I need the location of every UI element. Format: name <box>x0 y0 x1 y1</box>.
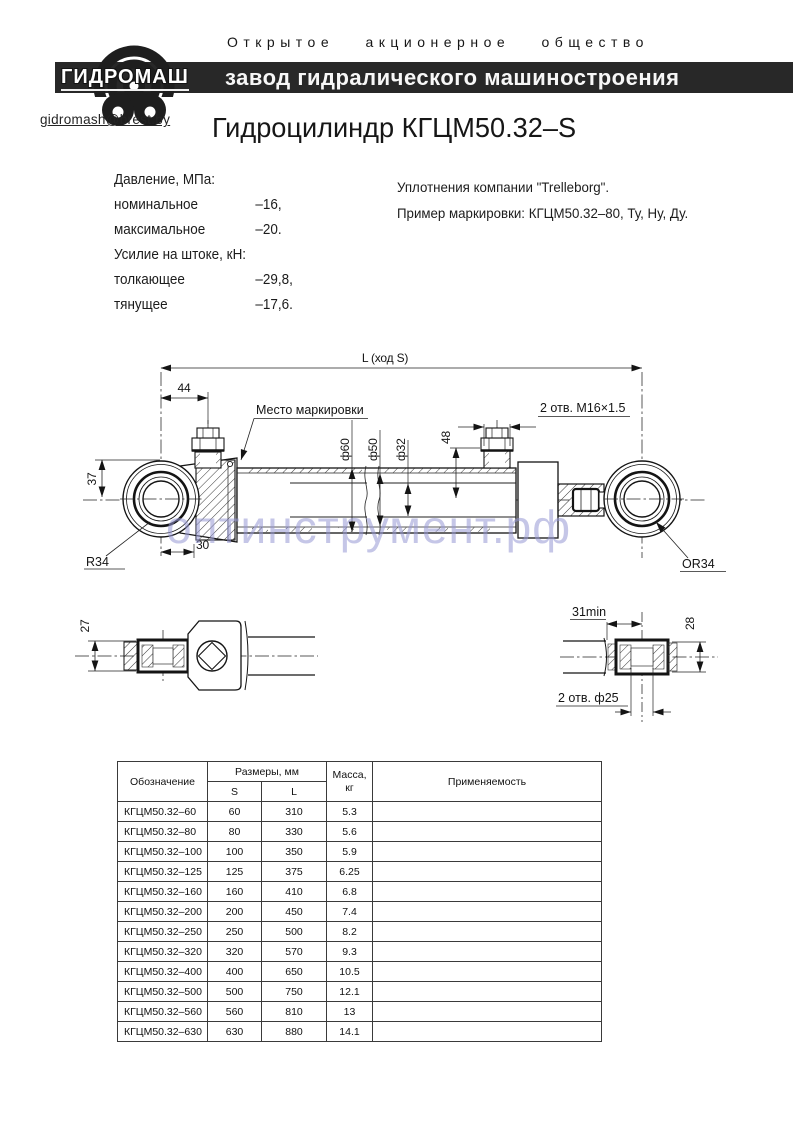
cell-mass: 6.8 <box>327 882 373 902</box>
spec-value: –20. <box>255 222 281 238</box>
cell-mass: 5.3 <box>327 802 373 822</box>
col-header-l: L <box>262 782 327 802</box>
table-row: КГЦМ50.32–50050075012.1 <box>118 982 602 1002</box>
cell-l: 410 <box>262 882 327 902</box>
col-header-mass: Масса, кг <box>327 762 373 802</box>
cell-l: 500 <box>262 922 327 942</box>
cell-application <box>373 842 602 862</box>
cell-designation: КГЦМ50.32–630 <box>118 1022 208 1042</box>
dim-label-48: 48 <box>439 431 453 444</box>
cell-designation: КГЦМ50.32–320 <box>118 942 208 962</box>
table-row: КГЦМ50.32–80803305.6 <box>118 822 602 842</box>
cell-l: 570 <box>262 942 327 962</box>
col-header-sizes: Размеры, мм <box>208 762 327 782</box>
spec-label: толкающее <box>114 268 255 293</box>
dim-label-dia50: ф50 <box>366 438 380 461</box>
dim-label-37: 37 <box>85 472 99 485</box>
spec-row: максимальное–20. <box>114 218 293 243</box>
holes-label: 2 отв. ф25 <box>558 691 619 705</box>
dim-label-dia60: ф60 <box>338 438 352 461</box>
cell-mass: 7.4 <box>327 902 373 922</box>
spec-row: толкающее–29,8, <box>114 268 293 293</box>
spec-label: Усилие на штоке, кН: <box>114 243 255 268</box>
dim-label-44: 44 <box>178 381 191 395</box>
spec-label: максимальное <box>114 218 255 243</box>
note-seals: Уплотнения компании "Trelleborg". <box>397 174 688 200</box>
cell-designation: КГЦМ50.32–100 <box>118 842 208 862</box>
datasheet-page: Открытое акционерное общество завод гидр… <box>0 0 793 1123</box>
cell-application <box>373 1022 602 1042</box>
dim-label-r34: R34 <box>86 555 109 569</box>
banner-title: завод гидралического машиностроения <box>225 62 680 93</box>
cell-application <box>373 1002 602 1022</box>
spec-label: Давление, МПа: <box>114 168 255 193</box>
sizes-table: Обозначение Размеры, мм Масса, кг Примен… <box>117 761 602 1042</box>
cell-l: 330 <box>262 822 327 842</box>
table-row: КГЦМ50.32–2502505008.2 <box>118 922 602 942</box>
table-row: КГЦМ50.32–56056081013 <box>118 1002 602 1022</box>
col-header-application: Применяемость <box>373 762 602 802</box>
table-row: КГЦМ50.32–1251253756.25 <box>118 862 602 882</box>
cell-s: 100 <box>208 842 262 862</box>
cell-l: 750 <box>262 982 327 1002</box>
cell-application <box>373 942 602 962</box>
cell-mass: 13 <box>327 1002 373 1022</box>
cell-designation: КГЦМ50.32–125 <box>118 862 208 882</box>
cell-l: 350 <box>262 842 327 862</box>
cell-s: 200 <box>208 902 262 922</box>
cell-s: 320 <box>208 942 262 962</box>
cell-l: 450 <box>262 902 327 922</box>
specs-block: Давление, МПа: номинальное–16, максималь… <box>114 168 293 318</box>
table-row: КГЦМ50.32–63063088014.1 <box>118 1022 602 1042</box>
cell-s: 250 <box>208 922 262 942</box>
cell-mass: 5.9 <box>327 842 373 862</box>
cell-mass: 14.1 <box>327 1022 373 1042</box>
logo-wordmark-text: ГИДРОМАШ <box>61 66 189 91</box>
cell-application <box>373 962 602 982</box>
detail-view-left: 27 <box>75 619 318 690</box>
cell-application <box>373 922 602 942</box>
table-row: КГЦМ50.32–1001003505.9 <box>118 842 602 862</box>
dim-label-31min: 31min <box>572 605 606 619</box>
table-row: КГЦМ50.32–1601604106.8 <box>118 882 602 902</box>
dim-label-total-length: L (ход S) <box>362 351 409 365</box>
spec-row: Усилие на штоке, кН: <box>114 243 293 268</box>
spec-label: номинальное <box>114 193 255 218</box>
table-row: КГЦМ50.32–2002004507.4 <box>118 902 602 922</box>
page-title: Гидроцилиндр КГЦМ50.32–S <box>212 112 576 144</box>
cell-s: 160 <box>208 882 262 902</box>
cell-s: 630 <box>208 1022 262 1042</box>
spec-value: –16, <box>255 197 281 213</box>
note-marking: Пример маркировки: КГЦМ50.32–80, Ту, Ну,… <box>397 200 688 226</box>
cell-application <box>373 862 602 882</box>
notes-block: Уплотнения компании "Trelleborg". Пример… <box>397 174 688 226</box>
cell-s: 560 <box>208 1002 262 1022</box>
logo-wordmark: ГИДРОМАШ <box>61 66 189 89</box>
col-header-designation: Обозначение <box>118 762 208 802</box>
dim-label-27: 27 <box>78 619 92 632</box>
cell-designation: КГЦМ50.32–200 <box>118 902 208 922</box>
cell-designation: КГЦМ50.32–160 <box>118 882 208 902</box>
org-type-line: Открытое акционерное общество <box>227 34 649 50</box>
cell-designation: КГЦМ50.32–80 <box>118 822 208 842</box>
cell-mass: 5.6 <box>327 822 373 842</box>
cell-mass: 6.25 <box>327 862 373 882</box>
cell-s: 500 <box>208 982 262 1002</box>
cell-s: 125 <box>208 862 262 882</box>
cell-l: 880 <box>262 1022 327 1042</box>
table-header-row: Обозначение Размеры, мм Масса, кг Примен… <box>118 762 602 782</box>
cell-mass: 10.5 <box>327 962 373 982</box>
cell-s: 60 <box>208 802 262 822</box>
cell-designation: КГЦМ50.32–60 <box>118 802 208 822</box>
spec-value: –29,8, <box>255 272 293 288</box>
cell-l: 375 <box>262 862 327 882</box>
cell-application <box>373 802 602 822</box>
cell-designation: КГЦМ50.32–500 <box>118 982 208 1002</box>
spec-label: тянущее <box>114 293 255 318</box>
cell-mass: 9.3 <box>327 942 373 962</box>
table-row: КГЦМ50.32–40040065010.5 <box>118 962 602 982</box>
ports-label: 2 отв. М16×1.5 <box>540 401 625 415</box>
email-link[interactable]: gidromash@brest.by <box>40 112 170 127</box>
cell-designation: КГЦМ50.32–250 <box>118 922 208 942</box>
spec-value: –17,6. <box>255 297 293 313</box>
cell-designation: КГЦМ50.32–400 <box>118 962 208 982</box>
cell-application <box>373 882 602 902</box>
col-header-s: S <box>208 782 262 802</box>
cell-application <box>373 982 602 1002</box>
cell-l: 310 <box>262 802 327 822</box>
cell-mass: 8.2 <box>327 922 373 942</box>
cell-designation: КГЦМ50.32–560 <box>118 1002 208 1022</box>
table-row: КГЦМ50.32–3203205709.3 <box>118 942 602 962</box>
cell-s: 80 <box>208 822 262 842</box>
marking-label: Место маркировки <box>256 403 364 417</box>
cell-l: 810 <box>262 1002 327 1022</box>
watermark: оптинструмент.рф <box>166 500 571 554</box>
table-row: КГЦМ50.32–60603105.3 <box>118 802 602 822</box>
dim-label-28: 28 <box>683 617 697 630</box>
cell-mass: 12.1 <box>327 982 373 1002</box>
cell-s: 400 <box>208 962 262 982</box>
spec-row: тянущее–17,6. <box>114 293 293 318</box>
dim-label-or34: ОR34 <box>682 557 715 571</box>
spec-row: номинальное–16, <box>114 193 293 218</box>
spec-row: Давление, МПа: <box>114 168 293 193</box>
cell-application <box>373 902 602 922</box>
dim-label-dia32: ф32 <box>394 438 408 461</box>
cell-application <box>373 822 602 842</box>
detail-view-right: 31min 28 2 отв. ф25 <box>556 605 718 722</box>
cell-l: 650 <box>262 962 327 982</box>
